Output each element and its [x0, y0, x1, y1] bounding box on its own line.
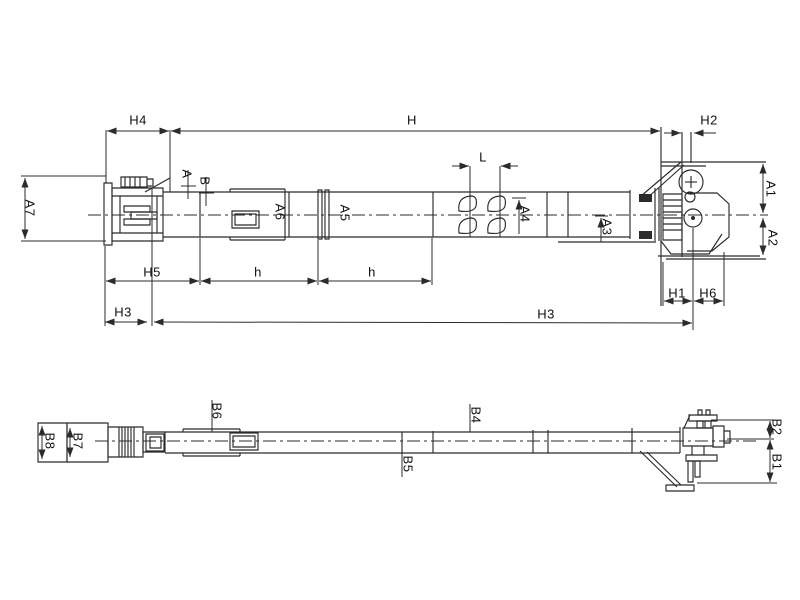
dim-label-b1: B1 — [771, 454, 784, 471]
dim-label-h: H — [407, 114, 417, 127]
dim-label-b6: B6 — [211, 403, 224, 420]
dim-label-a2: A2 — [767, 230, 780, 247]
dim-label-h-pitch-2: h — [368, 266, 376, 279]
section-label-a: A — [181, 169, 194, 178]
dim-label-a7: A7 — [24, 200, 37, 217]
dim-label-h6: H6 — [699, 287, 717, 300]
dim-label-b8: B8 — [44, 433, 57, 450]
dim-label-b4: B4 — [470, 407, 483, 424]
side-view-linework — [21, 127, 768, 330]
dim-label-a4: A4 — [519, 206, 532, 223]
dim-label-h5: H5 — [143, 266, 161, 279]
dim-label-h-pitch-1: h — [254, 266, 262, 279]
dim-label-a3: A3 — [601, 219, 614, 236]
dim-label-a1: A1 — [765, 181, 778, 198]
dim-label-a5: A5 — [339, 205, 352, 222]
dim-label-h3-overall: H3 — [537, 308, 555, 321]
dim-label-b5: B5 — [402, 456, 415, 473]
dim-label-b7: B7 — [72, 433, 85, 450]
dim-label-h4: H4 — [129, 114, 147, 127]
dim-label-h3-left: H3 — [114, 306, 132, 319]
dim-label-h2: H2 — [700, 114, 718, 127]
dim-label-a6: A6 — [274, 204, 287, 221]
dim-label-b2: B2 — [771, 419, 784, 436]
dim-label-l: L — [479, 151, 487, 164]
section-label-b: B — [199, 176, 212, 185]
dim-label-h1: H1 — [668, 287, 686, 300]
plan-view-linework — [38, 400, 777, 491]
engineering-drawing-page: H4 H H2 A7 A B A6 A5 L A4 A3 A1 A2 H5 h … — [0, 0, 800, 600]
